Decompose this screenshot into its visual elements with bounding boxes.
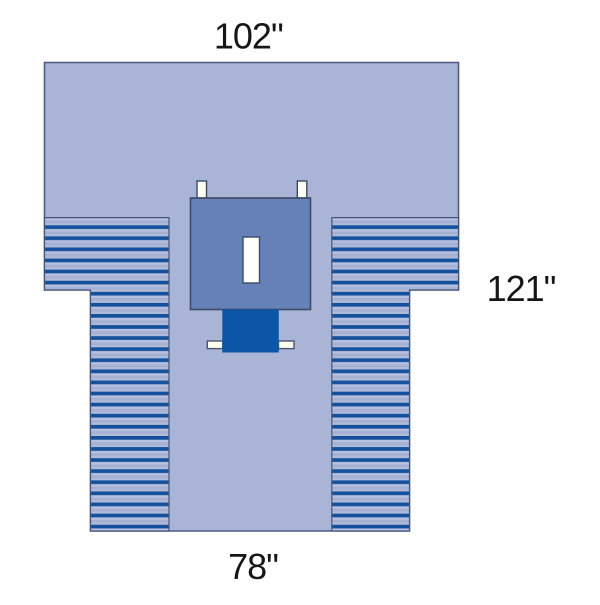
svg-text:102": 102" [214, 15, 283, 56]
svg-text:78": 78" [228, 546, 278, 587]
svg-text:121": 121" [487, 268, 556, 309]
